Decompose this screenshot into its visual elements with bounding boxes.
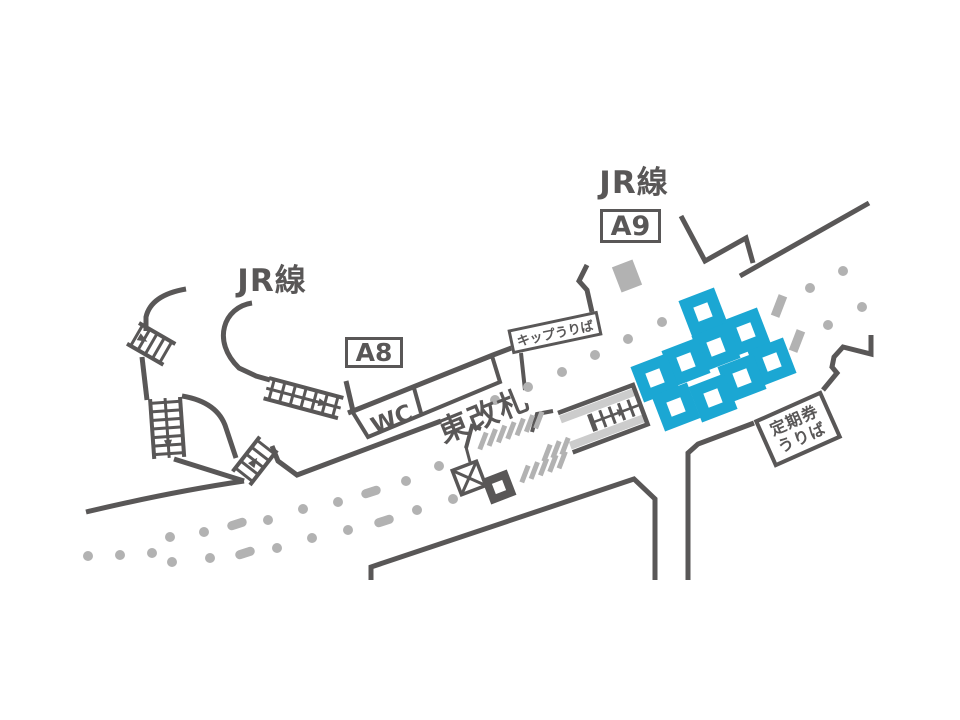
wall-stair-connector bbox=[142, 357, 147, 400]
tactile-dot bbox=[165, 532, 175, 542]
pillar-large bbox=[612, 259, 642, 292]
tactile-dot bbox=[838, 266, 848, 276]
pillar-small bbox=[789, 329, 805, 353]
tactile-dot bbox=[434, 461, 444, 471]
tactile-paving-dashes bbox=[226, 485, 395, 561]
gate-bar bbox=[559, 437, 570, 456]
tactile-dot bbox=[401, 476, 411, 486]
tactile-dot bbox=[412, 505, 422, 515]
tactile-dot bbox=[623, 334, 633, 344]
jr-line-label-left: JR線 bbox=[228, 259, 316, 295]
stair-northwest-upper bbox=[127, 323, 175, 365]
wall-stair-bulge bbox=[182, 396, 236, 458]
tactile-dot bbox=[298, 504, 308, 514]
escalator-east-icon bbox=[558, 385, 648, 452]
exit-a8-badge: A8 bbox=[345, 337, 403, 368]
gate-booth bbox=[482, 470, 517, 505]
stairs bbox=[127, 323, 343, 485]
tactile-dot bbox=[805, 283, 815, 293]
gate-bar bbox=[541, 444, 552, 463]
pillar-small bbox=[771, 294, 787, 318]
exit-a9-text: A9 bbox=[611, 211, 651, 242]
wall-arc-top-left bbox=[146, 289, 186, 331]
stair-step bbox=[154, 453, 184, 455]
exit-a8-text: A8 bbox=[356, 338, 393, 367]
tactile-dot bbox=[657, 317, 667, 327]
gate-bar bbox=[519, 465, 530, 484]
gate-bar bbox=[529, 461, 540, 480]
stair-step bbox=[153, 435, 183, 437]
jr-line-top-text: JR線 bbox=[599, 157, 668, 202]
tactile-dot bbox=[263, 515, 273, 525]
wall-southwest-curve bbox=[86, 481, 244, 512]
wall-northeast-diagonal bbox=[740, 203, 869, 276]
tactile-dot bbox=[199, 527, 209, 537]
station-map: JR線 JR線 A8 A9 WC 東改札 キップうりば 定期券 うりば bbox=[0, 0, 960, 720]
stair-a8 bbox=[264, 378, 344, 418]
tactile-dot bbox=[448, 494, 458, 504]
stair-northwest-lower bbox=[150, 397, 184, 459]
wall-a8-stair-endcap bbox=[346, 381, 353, 411]
stair-step bbox=[152, 418, 182, 420]
tactile-dot bbox=[823, 320, 833, 330]
gate-bar bbox=[550, 440, 561, 459]
ticket-machines bbox=[630, 287, 796, 431]
tactile-dot bbox=[857, 302, 867, 312]
tactile-dot bbox=[83, 551, 93, 561]
jr-line-left-text: JR線 bbox=[237, 255, 306, 300]
tactile-dot bbox=[167, 557, 177, 567]
wall-south-passage-east bbox=[688, 423, 754, 580]
tactile-dash bbox=[226, 517, 248, 532]
map-canvas bbox=[0, 0, 960, 720]
exit-a9-badge: A9 bbox=[600, 209, 661, 243]
tactile-dot bbox=[307, 533, 317, 543]
tactile-dash bbox=[360, 485, 382, 500]
wall-south-left bbox=[272, 421, 441, 475]
tactile-dot bbox=[115, 550, 125, 560]
walls-northwest bbox=[142, 289, 270, 481]
tactile-dash bbox=[373, 514, 395, 529]
tactile-dot bbox=[147, 548, 157, 558]
jr-line-label-top: JR線 bbox=[590, 161, 678, 197]
tactile-dot bbox=[333, 497, 343, 507]
wall-jr-curve bbox=[223, 303, 270, 380]
tactile-dot bbox=[205, 553, 215, 563]
tactile-dot bbox=[272, 543, 282, 553]
wall-a9-east-zigzag bbox=[681, 216, 753, 263]
stair-step bbox=[150, 401, 180, 403]
tactile-dash bbox=[234, 546, 256, 561]
tactile-dot bbox=[590, 350, 600, 360]
stair-step bbox=[152, 427, 182, 429]
wall-southeast-notch bbox=[823, 335, 871, 390]
gate-wall-left-drop bbox=[466, 447, 470, 462]
tactile-dot bbox=[557, 367, 567, 377]
tactile-dot bbox=[343, 525, 353, 535]
stair-step bbox=[151, 410, 181, 412]
service-box-x bbox=[452, 461, 486, 495]
